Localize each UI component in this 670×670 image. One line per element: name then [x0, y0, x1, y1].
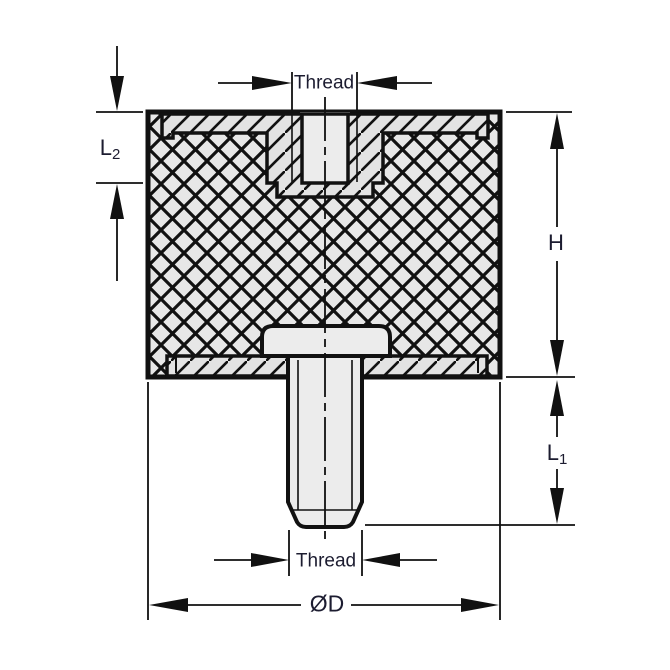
l1-subscript: 1: [559, 451, 567, 468]
dim-h: [506, 112, 575, 377]
dimension-label-l1: L1: [547, 442, 568, 464]
drawing-canvas: Thread L2 H L1 Thread ØD: [0, 0, 670, 670]
arrow-left-icon: [357, 76, 397, 90]
dimension-label-diameter: ØD: [310, 593, 345, 616]
mount-body: [148, 97, 500, 543]
arrow-right-icon: [252, 76, 292, 90]
dimension-label-l2: L2: [100, 137, 121, 159]
dim-l2: [96, 46, 143, 281]
arrow-left-icon: [149, 598, 188, 612]
dim-l1: [365, 380, 575, 525]
arrow-up-icon: [110, 184, 124, 219]
dimension-label-thread-top: Thread: [294, 74, 354, 93]
arrow-down-icon: [550, 488, 564, 524]
bolt-head: [262, 326, 390, 356]
arrow-up-icon: [550, 113, 564, 149]
l1-base: L: [547, 440, 559, 465]
arrow-right-icon: [251, 553, 289, 567]
arrow-down-icon: [550, 340, 564, 376]
arrow-right-icon: [461, 598, 499, 612]
arrow-down-icon: [110, 76, 124, 111]
dimension-label-h: H: [548, 232, 564, 254]
l2-subscript: 2: [112, 146, 120, 163]
arrow-up-icon: [550, 380, 564, 416]
arrow-left-icon: [362, 553, 400, 567]
l2-base: L: [100, 135, 112, 160]
dimension-label-thread-bottom: Thread: [296, 552, 356, 571]
